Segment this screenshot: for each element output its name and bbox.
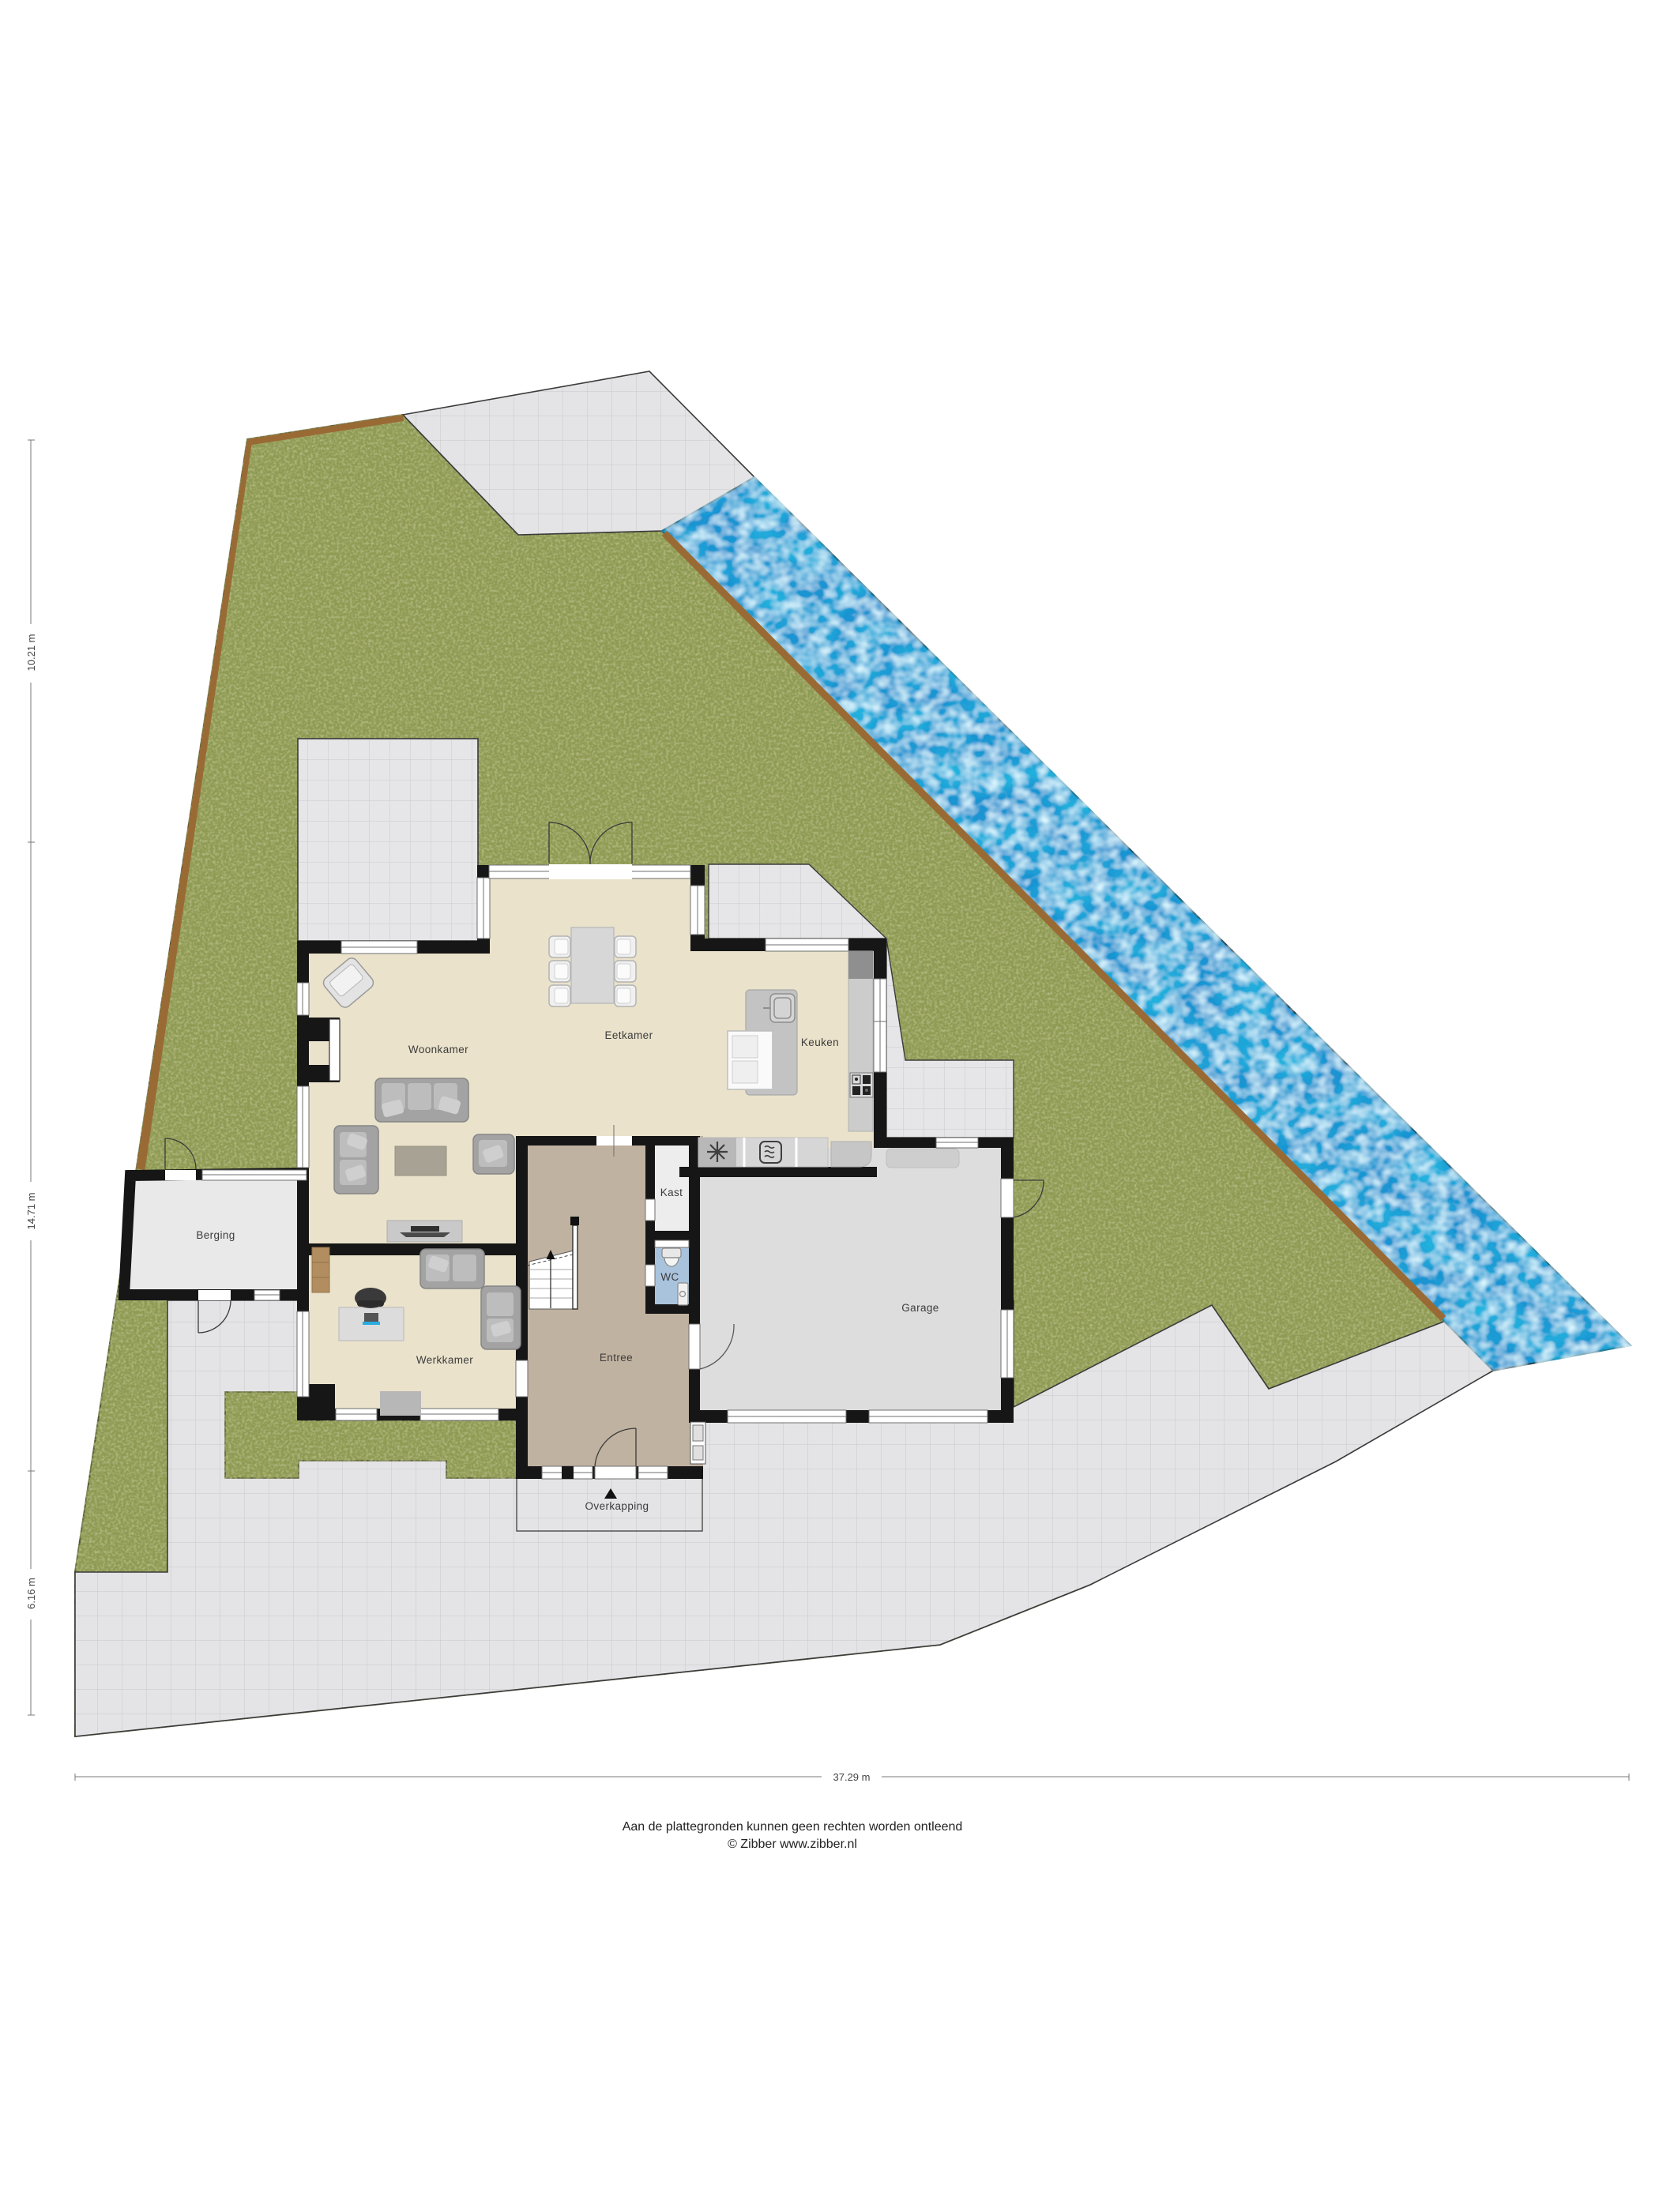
svg-text:14.71 m: 14.71 m	[25, 1193, 37, 1230]
svg-text:37.29 m: 37.29 m	[833, 1771, 871, 1783]
svg-text:Werkkamer: Werkkamer	[416, 1354, 473, 1366]
svg-text:WC: WC	[660, 1271, 679, 1283]
svg-text:Berging: Berging	[196, 1229, 235, 1241]
svg-text:© Zibber www.zibber.nl: © Zibber www.zibber.nl	[728, 1838, 857, 1851]
svg-text:Garage: Garage	[901, 1302, 939, 1314]
svg-text:Keuken: Keuken	[801, 1036, 839, 1048]
svg-text:Woonkamer: Woonkamer	[408, 1044, 468, 1055]
svg-text:Kast: Kast	[660, 1187, 683, 1198]
svg-text:Entree: Entree	[600, 1352, 633, 1364]
svg-text:Aan de plattegronden kunnen ge: Aan de plattegronden kunnen geen rechten…	[623, 1820, 963, 1834]
svg-text:10.21 m: 10.21 m	[25, 634, 37, 671]
svg-text:Overkapping: Overkapping	[585, 1500, 649, 1512]
svg-text:6.16 m: 6.16 m	[25, 1578, 37, 1609]
svg-text:Eetkamer: Eetkamer	[605, 1029, 653, 1041]
